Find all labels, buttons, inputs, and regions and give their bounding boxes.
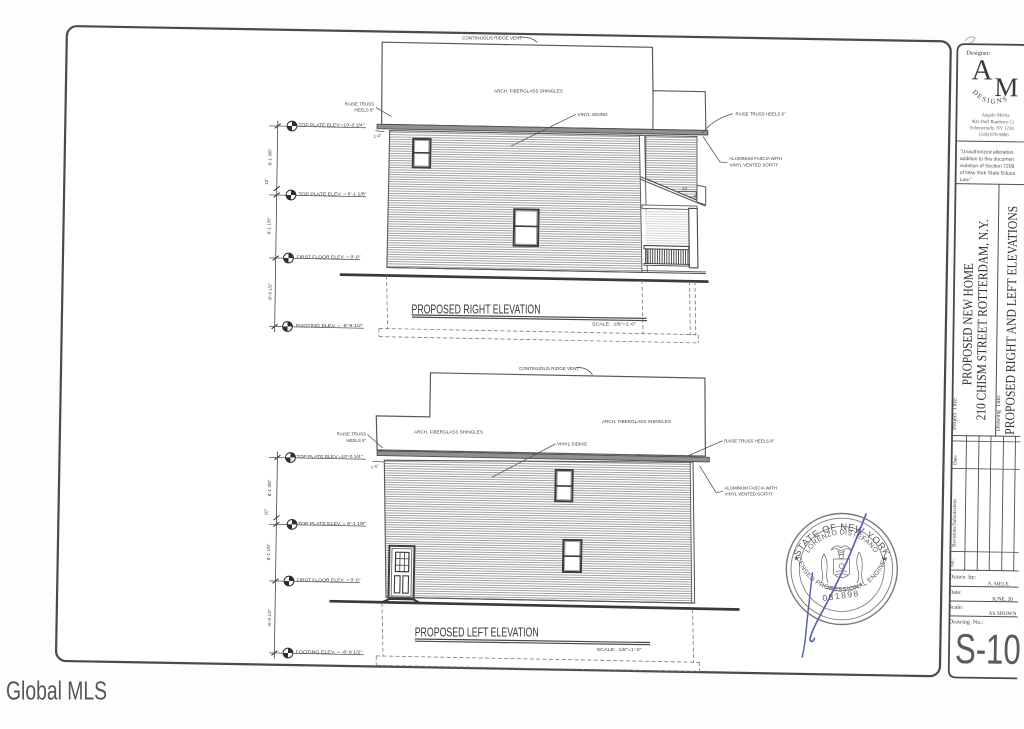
svg-text:PROPOSED RIGHT ELEVATION: PROPOSED RIGHT ELEVATION	[412, 301, 541, 316]
svg-text:CONTINUOUS RIDGE VENT: CONTINUOUS RIDGE VENT	[462, 35, 522, 40]
svg-text:Date: Date	[953, 454, 959, 465]
svg-text:RAISE TRUSS HEELS 8": RAISE TRUSS HEELS 8"	[724, 439, 774, 444]
svg-text:Drawing Title:: Drawing Title:	[996, 394, 1003, 431]
svg-text:8'-1 1/8": 8'-1 1/8"	[266, 543, 271, 560]
svg-text:VINYL SIDING: VINYL SIDING	[557, 441, 588, 446]
svg-text:★: ★	[793, 555, 799, 563]
svg-text:★: ★	[881, 555, 887, 563]
svg-text:A. MELE.: A. MELE.	[987, 581, 1010, 587]
svg-text:TOP PLATE ELEV. = 8'-1 1/8": TOP PLATE ELEV. = 8'-1 1/8"	[298, 521, 366, 526]
svg-text:FOOTING ELEV. = -8'-9 1/2": FOOTING ELEV. = -8'-9 1/2"	[296, 650, 363, 655]
svg-text:RAISE TRUSS: RAISE TRUSS	[337, 432, 366, 437]
svg-text:-8'-9 1/2": -8'-9 1/2"	[267, 282, 272, 301]
svg-text:violation of Section 7209: violation of Section 7209	[960, 163, 1015, 170]
svg-text:TOP PLATE ELEV.=10'-0 1/4": TOP PLATE ELEV.=10'-0 1/4"	[299, 123, 365, 128]
svg-text:PROPOSED RIGHT AND LEFT ELEVAT: PROPOSED RIGHT AND LEFT ELEVATIONS	[1002, 206, 1020, 435]
svg-text:S-10: S-10	[955, 626, 1021, 674]
svg-text:10": 10"	[264, 178, 269, 185]
svg-text:Revisions/Submissions: Revisions/Submissions	[951, 499, 958, 547]
svg-text:ARCH. FIBERGLASS SHINGLES: ARCH. FIBERGLASS SHINGLES	[494, 88, 563, 93]
svg-text:Drawn by:: Drawn by:	[949, 574, 976, 580]
svg-text:FIRST FLOOR ELEV. = 0'-0": FIRST FLOOR ELEV. = 0'-0"	[297, 578, 361, 583]
svg-text:VINYL VENTED SOFFIT: VINYL VENTED SOFFIT	[725, 492, 774, 497]
svg-text:Schenectady, NY 1230: Schenectady, NY 1230	[970, 126, 1015, 132]
svg-text:Law.": Law."	[960, 177, 972, 183]
svg-text:JUNE, 20: JUNE, 20	[992, 597, 1014, 603]
svg-text:Date:: Date:	[949, 590, 962, 596]
svg-text:902 Duff Bambury Ct: 902 Duff Bambury Ct	[972, 120, 1015, 126]
svg-text:A: A	[971, 54, 992, 86]
svg-text:VINYL SIDING: VINYL SIDING	[578, 112, 609, 117]
svg-text:SCALE: 1/8"=1'-0": SCALE: 1/8"=1'-0"	[592, 321, 636, 326]
svg-text:Global MLS: Global MLS	[6, 678, 107, 706]
svg-text:TOP PLATE ELEV. = 8'-1 1/8": TOP PLATE ELEV. = 8'-1 1/8"	[299, 192, 367, 197]
svg-text:PROPOSED LEFT ELEVATION: PROPOSED LEFT ELEVATION	[415, 625, 539, 640]
svg-text:No.:: No.:	[950, 557, 956, 567]
svg-text:SCALE: 1/8"=1'-0": SCALE: 1/8"=1'-0"	[597, 647, 642, 652]
svg-text:Angelo Melita: Angelo Melita	[982, 113, 1011, 118]
svg-text:ARCH. FIBERGLASS SHINGLES: ARCH. FIBERGLASS SHINGLES	[414, 430, 483, 435]
svg-text:12: 12	[682, 186, 688, 191]
svg-text:210 CHISM STREET ROTTERDAM, N.: 210 CHISM STREET ROTTERDAM, N.Y.	[973, 219, 991, 420]
svg-text:ARCH. FIBERGLASS SHINGLES: ARCH. FIBERGLASS SHINGLES	[602, 419, 671, 424]
svg-text:4: 4	[693, 194, 696, 199]
svg-text:Scale:: Scale:	[949, 605, 964, 611]
svg-text:addition to this documen: addition to this documen	[960, 156, 1014, 163]
svg-text:FIRST FLOOR ELEV. = 0'-0": FIRST FLOOR ELEV. = 0'-0"	[297, 255, 361, 260]
svg-text:HEELS 6": HEELS 6"	[346, 438, 366, 443]
svg-text:FOOTING ELEV. = -8'-9 1/2": FOOTING ELEV. = -8'-9 1/2"	[296, 323, 363, 328]
svg-text:CONTINUOUS RIDGE VENT: CONTINUOUS RIDGE VENT	[519, 366, 579, 371]
svg-text:-8'-9 1/2": -8'-9 1/2"	[267, 608, 272, 627]
svg-text:8'-1 3/8": 8'-1 3/8"	[267, 148, 272, 165]
svg-text:TOP PLATE ELEV.=10'-0 1/4": TOP PLATE ELEV.=10'-0 1/4"	[297, 454, 363, 459]
svg-text:ALUMINUM FASCIA WITH: ALUMINUM FASCIA WITH	[730, 156, 782, 161]
svg-text:"Unauthorized alteration: "Unauthorized alteration	[960, 149, 1014, 156]
svg-text:Project Title:: Project Title:	[952, 397, 958, 430]
svg-text:ALUMINUM FASCIA WITH: ALUMINUM FASCIA WITH	[725, 485, 777, 490]
svg-text:AS SHOWN: AS SHOWN	[989, 611, 1017, 617]
svg-text:8'-1 1/8": 8'-1 1/8"	[266, 217, 271, 234]
svg-text:10": 10"	[264, 508, 269, 515]
svg-text:HEELS 8": HEELS 8"	[354, 107, 374, 112]
svg-text:VINYL VENTED SOFFIT: VINYL VENTED SOFFIT	[730, 162, 779, 167]
svg-text:8'-1 3/8": 8'-1 3/8"	[267, 479, 272, 496]
svg-text:of New York State Educa: of New York State Educa	[960, 170, 1016, 177]
svg-text:RAISE TRUSS: RAISE TRUSS	[345, 101, 374, 106]
svg-text:(518) 878-9066: (518) 878-9066	[979, 133, 1010, 138]
svg-text:RAISE TRUSS HEELS 6": RAISE TRUSS HEELS 6"	[736, 111, 786, 116]
